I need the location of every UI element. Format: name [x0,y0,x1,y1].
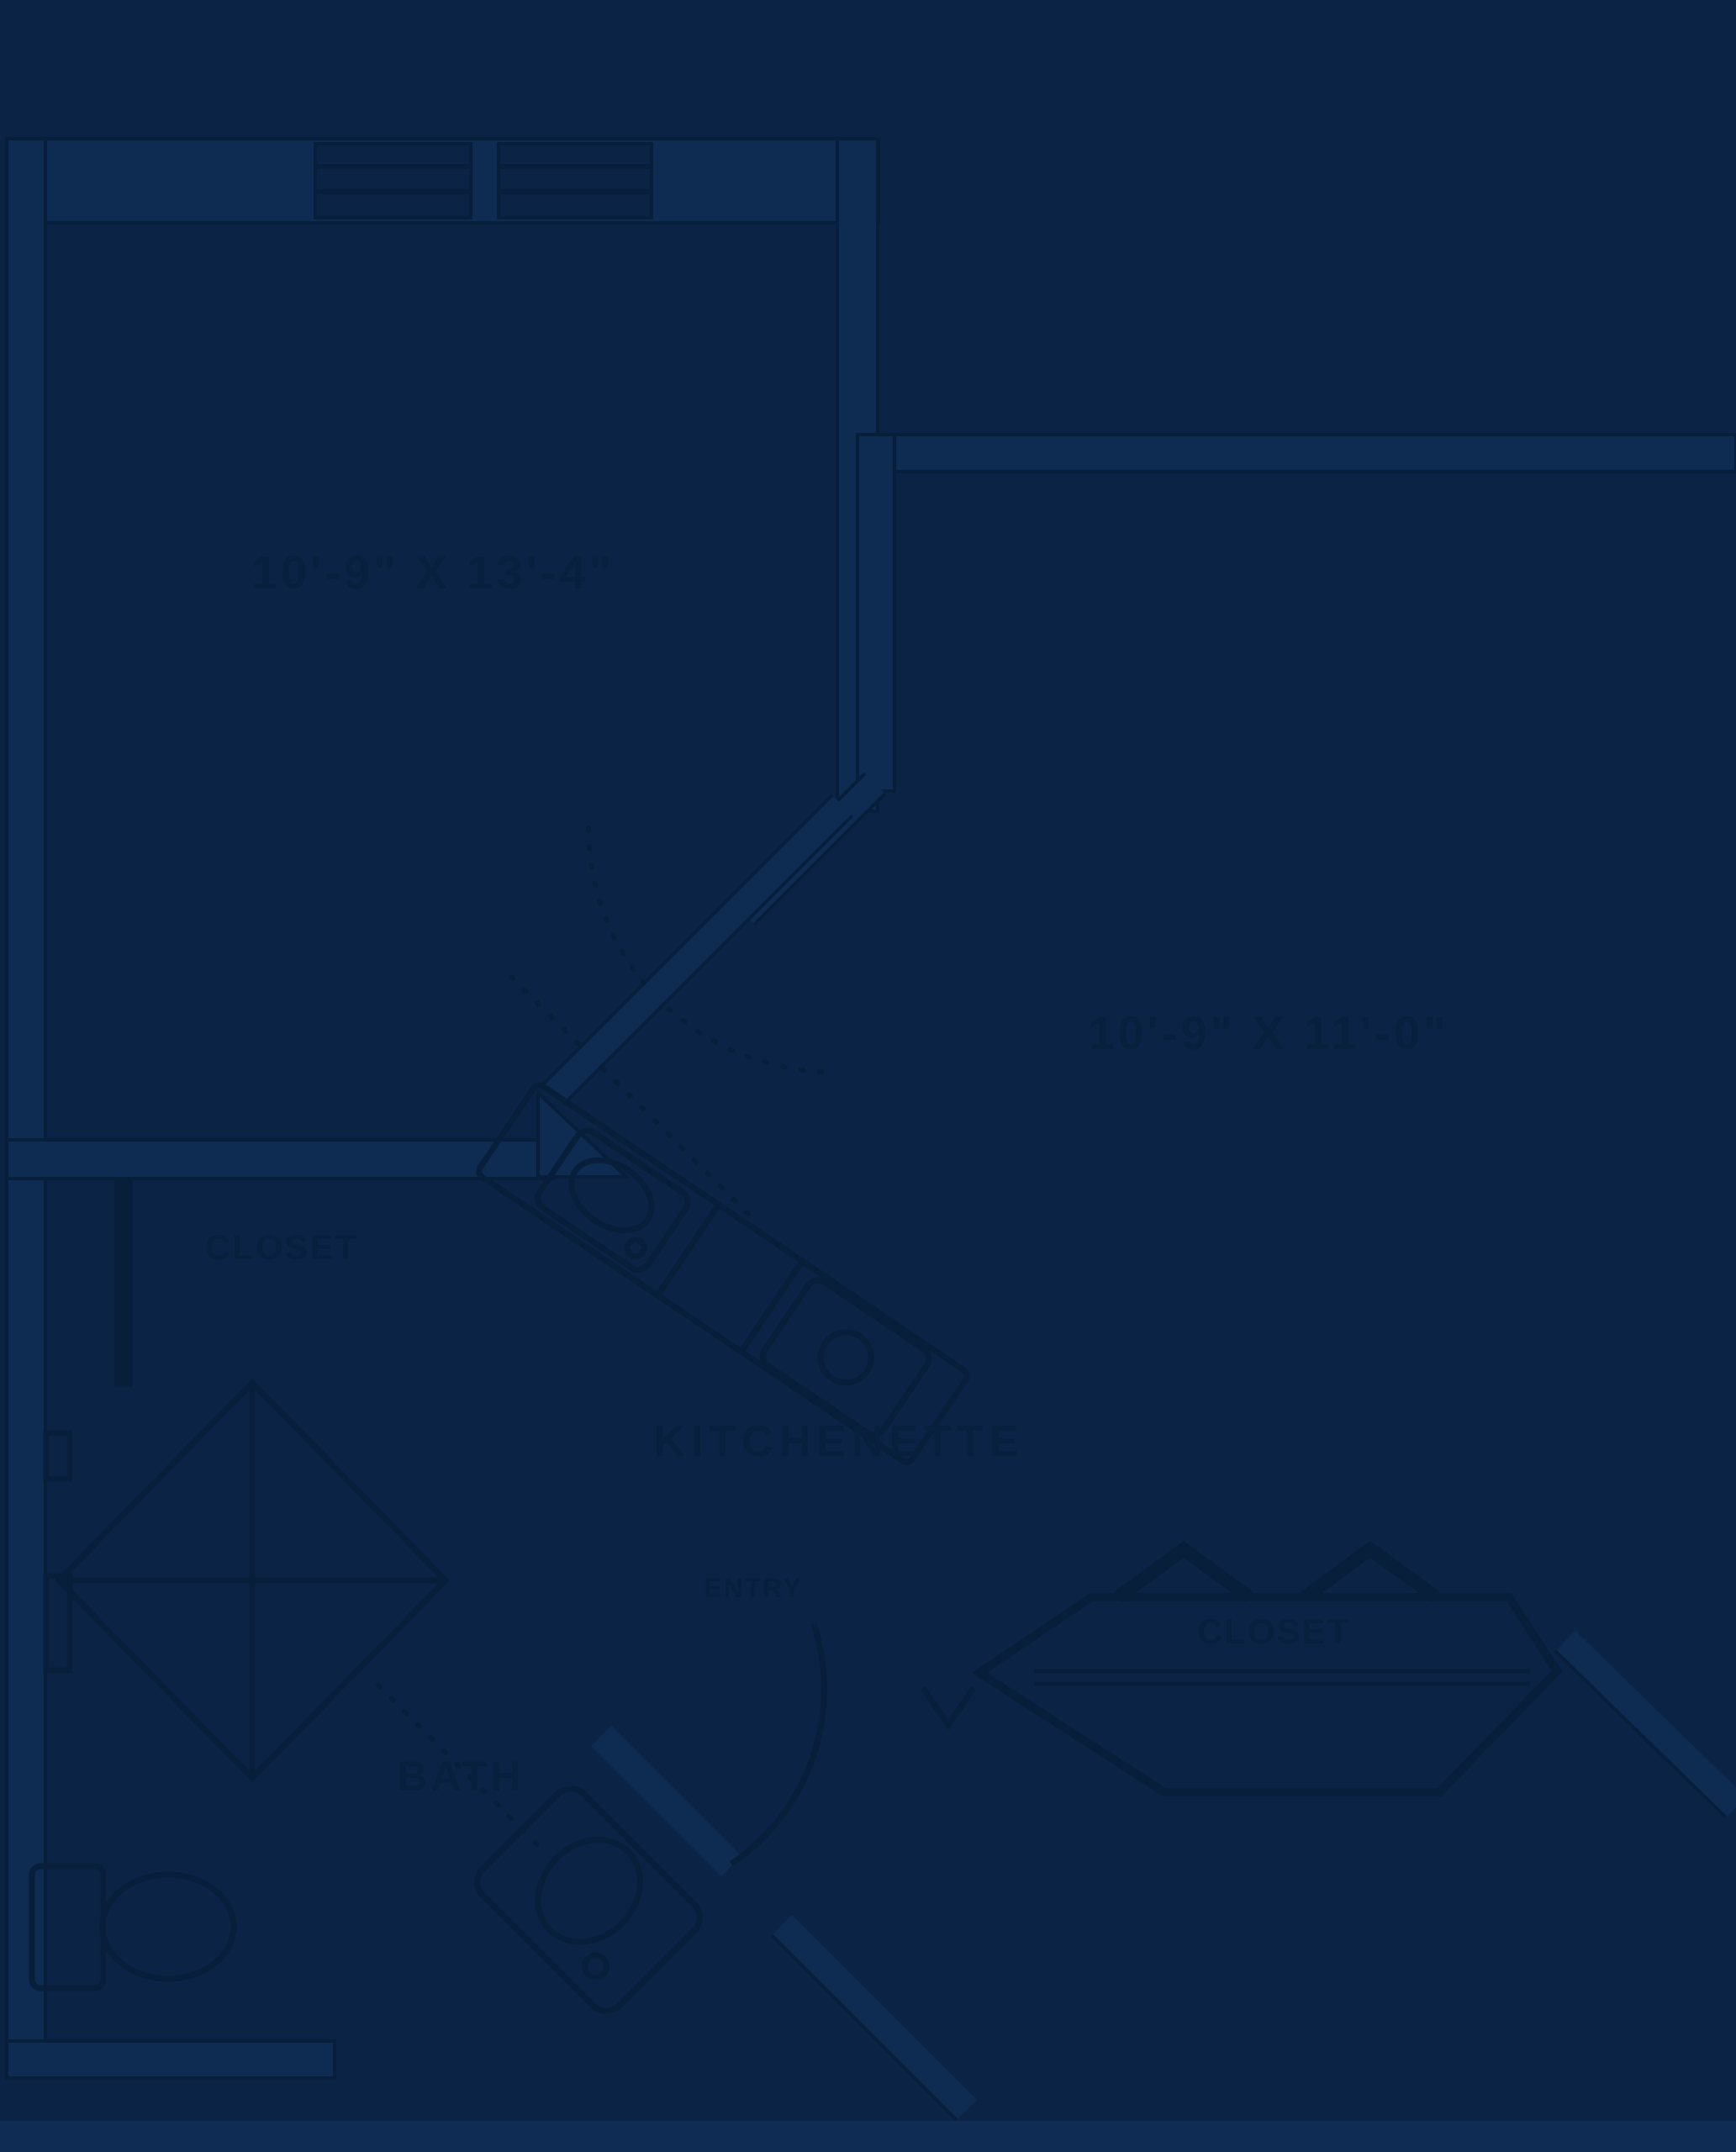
bath-bottom-wall [7,2041,335,2078]
room-2-bottom-diagonal-wall [1555,1641,1736,1817]
window-icon [499,144,652,218]
entry-side-diagonal-wall [772,1925,967,2120]
room-2-left-wall [857,435,894,791]
left-exterior-wall [7,139,45,2064]
hanger-icon [1118,1549,1249,1597]
kitchenette-label: KITCHENETTE [654,1417,1025,1466]
closet-right: CLOSET [979,1549,1557,1792]
door-jamb [46,1433,70,1479]
floor-plan-page: 10'-9" X 13'-4" 10'-9" X 11'-0" [0,0,1736,2152]
bath-label: BATH [397,1753,524,1800]
entry-wall-notch [923,1688,974,1725]
core-diagonal-wall [538,795,852,1177]
room-2-dimensions-label: 10'-9" X 11'-0" [1088,1006,1448,1059]
closet-left-label: CLOSET [205,1227,358,1267]
shower-icon [59,1383,446,1778]
closet-right-label: CLOSET [1197,1611,1350,1651]
room-1-bottom-wall [7,1140,553,1179]
hanger-icon [1305,1549,1436,1597]
entry: ENTRY [601,1573,974,1866]
toilet-icon [32,1866,234,1988]
footer-strip [0,2121,1736,2152]
kitchenette: KITCHENETTE [477,795,1025,1466]
window-icon [315,144,471,218]
room-1-dimensions-label: 10'-9" X 13'-4" [251,546,615,599]
entry-label: ENTRY [704,1573,802,1603]
floor-plan-drawing: 10'-9" X 13'-4" 10'-9" X 11'-0" [0,0,1736,2152]
room-2-top-wall [857,435,1736,472]
stove-icon [758,1276,933,1440]
entry-door-arc-icon [731,1624,824,1864]
room-2: 10'-9" X 11'-0" [734,435,1736,1817]
